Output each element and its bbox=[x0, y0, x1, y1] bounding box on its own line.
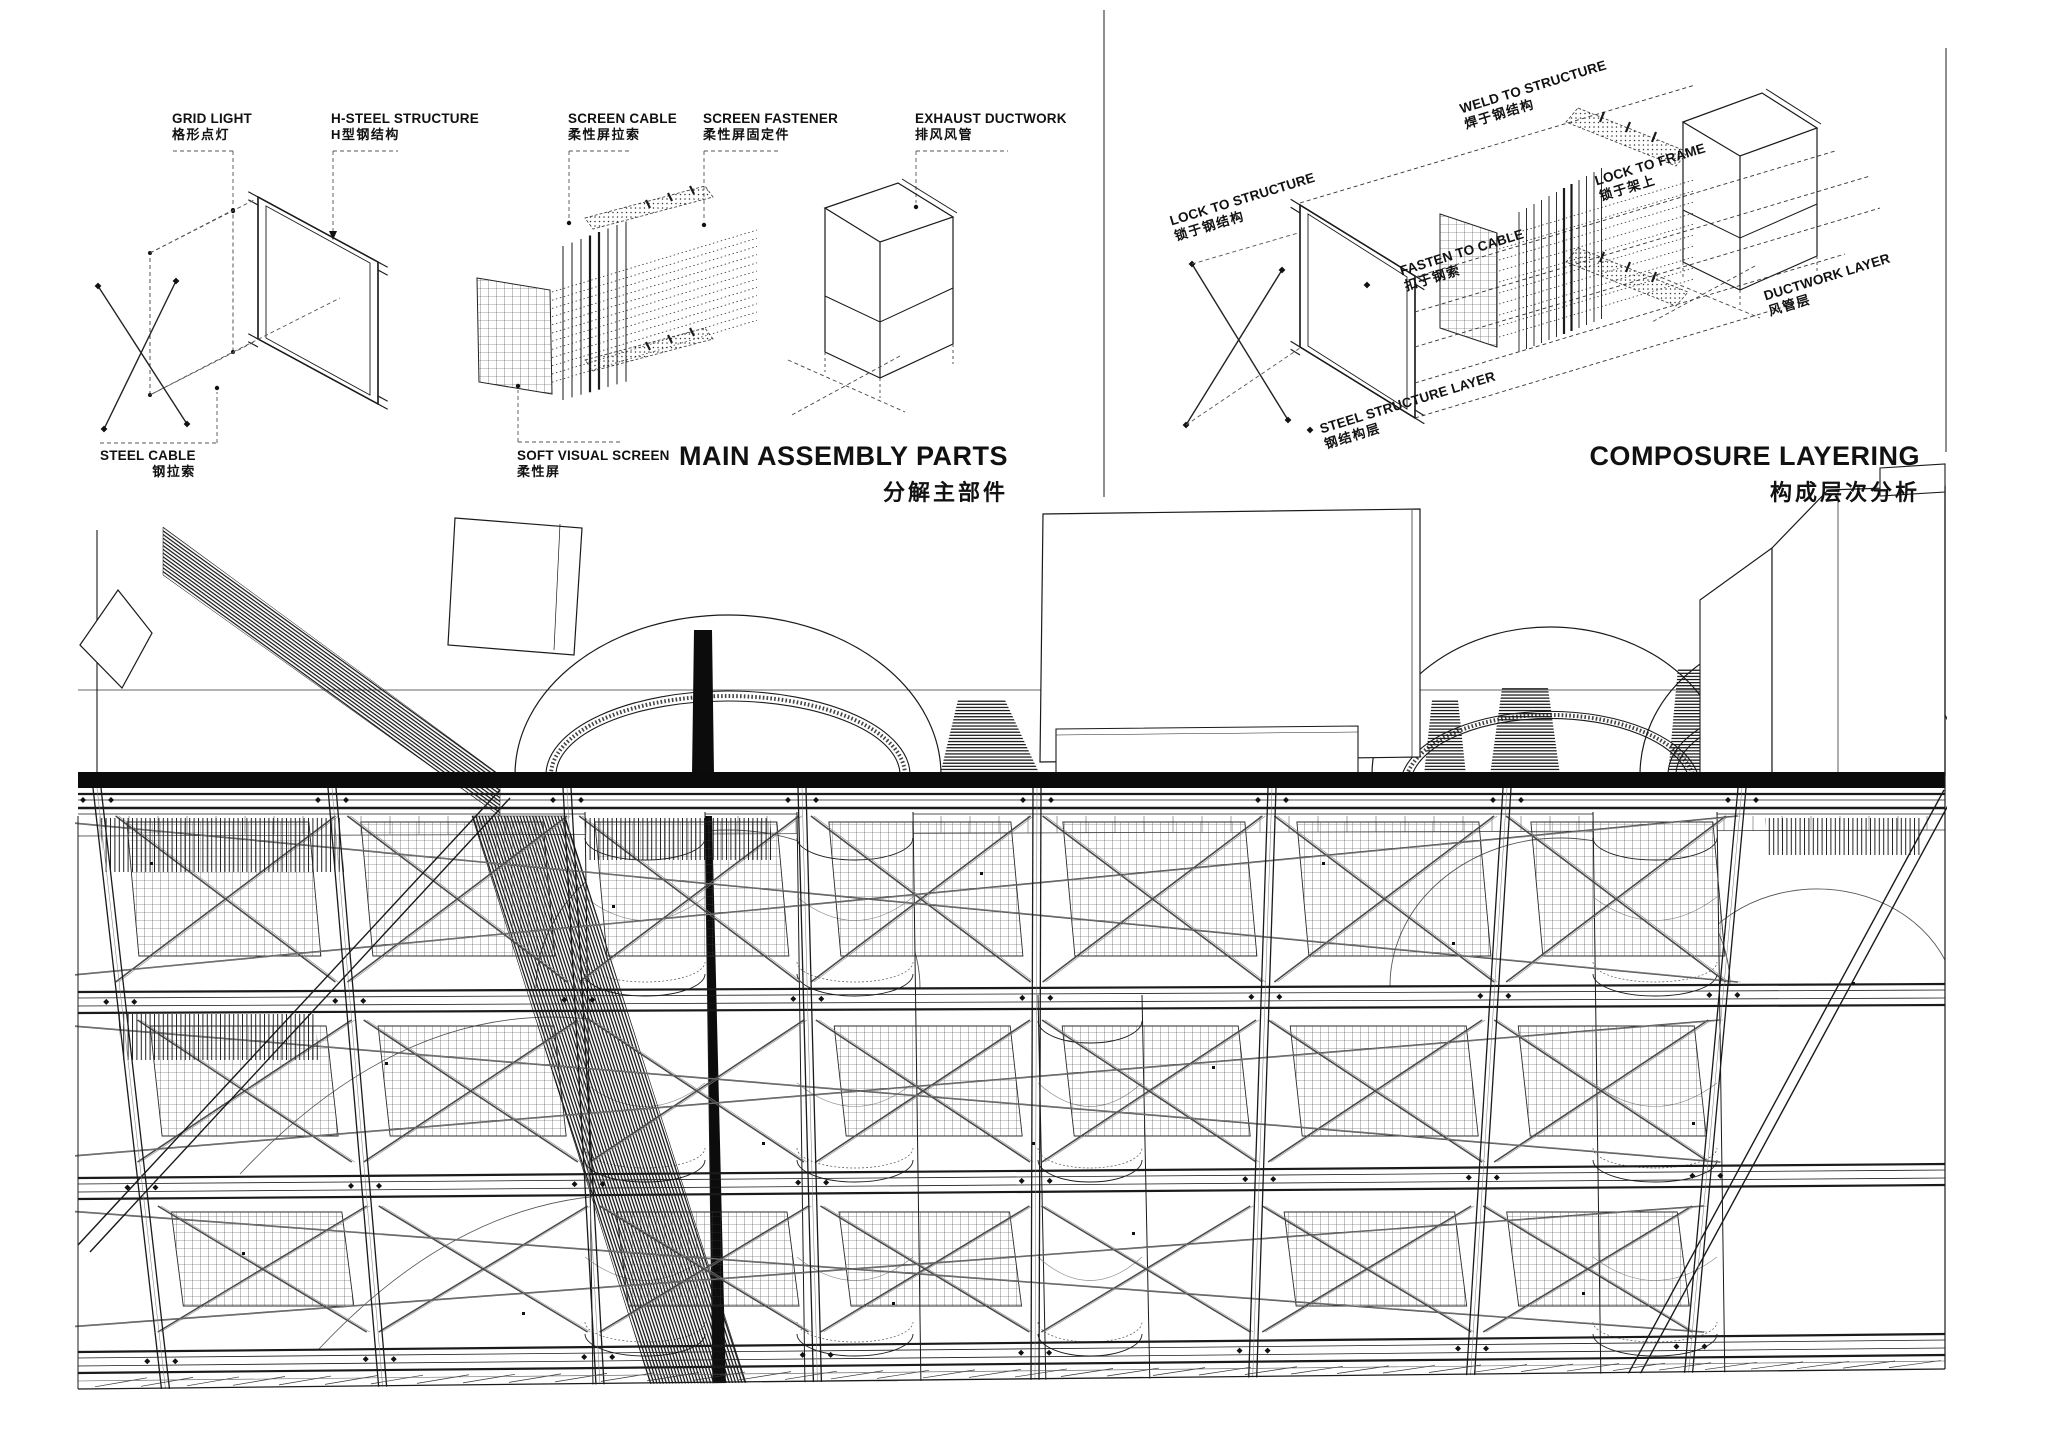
layering-diagram-right bbox=[1183, 85, 1880, 433]
label-steel-cable-zh: 钢拉索 bbox=[100, 464, 196, 480]
label-exhaust-en: EXHAUST DUCTWORK bbox=[915, 111, 1067, 126]
label-screen-fastener-en: SCREEN FASTENER bbox=[703, 111, 838, 126]
label-steel-cable: STEEL CABLE 钢拉索 bbox=[100, 448, 196, 480]
title-right-en: COMPOSURE LAYERING bbox=[1589, 441, 1920, 472]
label-soft-screen-en: SOFT VISUAL SCREEN bbox=[517, 448, 670, 463]
title-left-en: MAIN ASSEMBLY PARTS bbox=[679, 441, 1008, 472]
label-screen-fastener-zh: 柔性屏固定件 bbox=[703, 127, 838, 143]
label-grid-light-zh: 格形点灯 bbox=[172, 127, 252, 143]
label-screen-cable-zh: 柔性屏拉索 bbox=[568, 127, 677, 143]
label-h-steel-en: H-STEEL STRUCTURE bbox=[331, 111, 479, 126]
label-screen-cable-en: SCREEN CABLE bbox=[568, 111, 677, 126]
label-h-steel-structure: H-STEEL STRUCTURE H型钢结构 bbox=[331, 111, 479, 143]
title-right-zh: 构成层次分析 bbox=[1589, 475, 1920, 507]
label-h-steel-zh: H型钢结构 bbox=[331, 127, 479, 143]
label-grid-light-en: GRID LIGHT bbox=[172, 111, 252, 126]
title-composure-layering: COMPOSURE LAYERING 构成层次分析 bbox=[1589, 441, 1920, 507]
line-art-canvas bbox=[0, 0, 2048, 1448]
label-exhaust-zh: 排风风管 bbox=[915, 127, 1067, 143]
label-screen-cable: SCREEN CABLE 柔性屏拉索 bbox=[568, 111, 677, 143]
label-exhaust-ductwork: EXHAUST DUCTWORK 排风风管 bbox=[915, 111, 1067, 143]
drawing-sheet: GRID LIGHT 格形点灯 H-STEEL STRUCTURE H型钢结构 … bbox=[0, 0, 2048, 1448]
structure-perspective-drawing bbox=[0, 464, 1960, 1389]
label-screen-fastener: SCREEN FASTENER 柔性屏固定件 bbox=[703, 111, 838, 143]
label-grid-light: GRID LIGHT 格形点灯 bbox=[172, 111, 252, 143]
assembly-diagram-left bbox=[95, 151, 1008, 443]
title-left-zh: 分解主部件 bbox=[679, 475, 1008, 507]
label-soft-visual-screen: SOFT VISUAL SCREEN 柔性屏 bbox=[517, 448, 670, 480]
label-steel-cable-en: STEEL CABLE bbox=[100, 448, 196, 463]
title-main-assembly-parts: MAIN ASSEMBLY PARTS 分解主部件 bbox=[679, 441, 1008, 507]
label-soft-screen-zh: 柔性屏 bbox=[517, 464, 670, 480]
